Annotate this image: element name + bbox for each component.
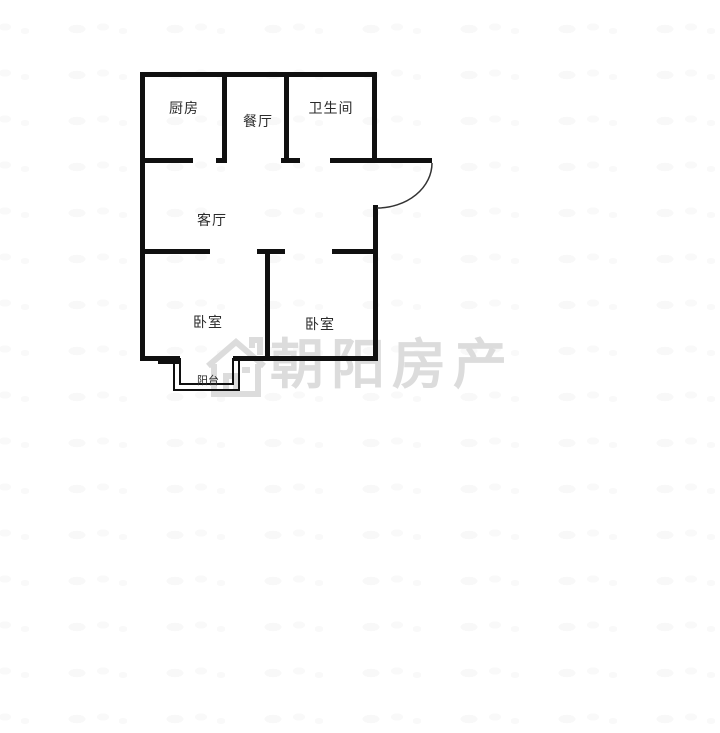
wall-left [140,72,145,361]
wall-right-lower [373,205,378,361]
wall-bathroom-right [372,72,377,163]
wall-kitchen-divider-foot [216,158,227,163]
wall-mid-left-segment [140,249,210,254]
room-label-dining: 餐厅 [243,111,273,131]
floor-plan: 厨房 餐厅 卫生间 客厅 卧室 卧室 阳台 [0,0,720,733]
wall-bottom-right-segment [233,356,378,361]
room-label-kitchen: 厨房 [169,98,199,118]
wall-kitchen-divider [222,75,227,163]
wall-mid-right-segment [332,249,378,254]
wall-top [140,72,377,77]
room-label-bedroom-right: 卧室 [305,314,335,334]
wall-bathroom-left-foot [281,158,300,163]
wall-bedroom-divider [265,252,270,361]
room-label-bedroom-left: 卧室 [193,312,223,332]
room-label-bathroom: 卫生间 [309,98,354,118]
entry-door-arc [375,160,435,210]
room-label-balcony: 阳台 [197,372,219,388]
page-background: 朝阳房产 厨房 餐厅 卫生间 客厅 卧室 卧室 阳台 [0,0,720,733]
wall-bathroom-left [284,75,289,163]
wall-upper-left-segment [140,158,193,163]
room-label-living: 客厅 [197,210,227,230]
wall-mid-center-segment [257,249,285,254]
